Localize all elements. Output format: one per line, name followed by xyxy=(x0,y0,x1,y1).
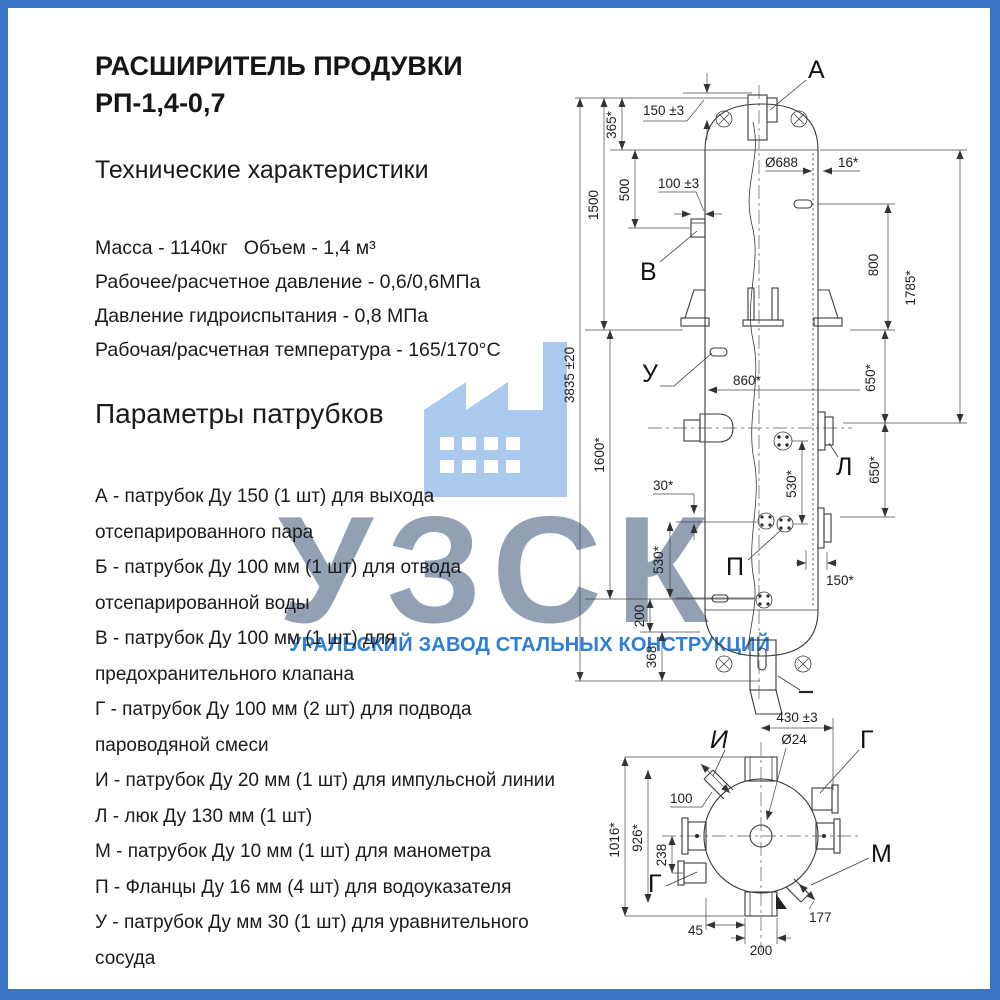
dim-365: 365* xyxy=(604,110,619,139)
dim-150-3: 150 ±3 xyxy=(643,103,684,118)
gauge-flange-p xyxy=(774,432,792,450)
dim-530b: 530* xyxy=(651,545,666,574)
dim-1600: 1600* xyxy=(592,437,607,473)
dim-650b: 650* xyxy=(867,455,882,484)
dim-1016: 1016* xyxy=(607,822,622,858)
label-u: У xyxy=(642,360,658,388)
dim-45: 45 xyxy=(688,923,703,938)
internal-support xyxy=(743,288,783,326)
label-a: А xyxy=(808,56,825,84)
dim-368: 368 xyxy=(644,646,659,669)
nozzle-a xyxy=(748,95,777,140)
spec-line: Масса - 1140кг Объем - 1,4 м³ xyxy=(95,231,575,265)
dim-530a: 530* xyxy=(784,469,799,498)
dim-1785: 1785* xyxy=(903,270,918,306)
label-g-bottom: Г xyxy=(648,870,662,898)
gauge-flange-p xyxy=(777,516,793,532)
label-l: Л xyxy=(836,453,852,481)
dim-1500: 1500 xyxy=(586,190,601,220)
title-line-2: РП-1,4-0,7 xyxy=(95,85,575,122)
nozzle-b-bottom xyxy=(750,640,813,714)
dim-100: 100 xyxy=(670,791,693,806)
list-item: Г - патрубок Ду 100 мм (2 шт) для подвод… xyxy=(95,692,575,763)
plan-nozzle-i xyxy=(704,770,733,799)
spec-line: Рабочее/расчетное давление - 0,6/0,6МПа xyxy=(95,265,575,299)
list-item: В - патрубок Ду 100 мм (1 шт) для предох… xyxy=(95,621,575,692)
label-g-top: Г xyxy=(860,726,874,754)
list-item: Л - люк Ду 130 мм (1 шт) xyxy=(95,799,575,835)
specs-list: Масса - 1140кг Объем - 1,4 м³ Рабочее/ра… xyxy=(95,231,575,367)
nozzle-small-left xyxy=(712,595,728,602)
spec-line: Давление гидроиспытания - 0,8 МПа xyxy=(95,299,575,333)
dim-430: 430 ±3 xyxy=(776,710,817,725)
dim-30: 30* xyxy=(653,478,674,493)
list-item: А - патрубок Ду 150 (1 шт) для выхода от… xyxy=(95,479,575,550)
dim-926: 926* xyxy=(630,823,645,852)
page: УЗСК УРАЛЬСКИЙ ЗАВОД СТАЛЬНЫХ КОНСТРУКЦИ… xyxy=(0,0,1000,1000)
list-item: И - патрубок Ду 20 мм (1 шт) для импульс… xyxy=(95,763,575,799)
dim-200: 200 xyxy=(632,605,647,628)
list-item: Б - патрубок Ду 100 мм (1 шт) для отвода… xyxy=(95,550,575,621)
dim-238: 238 xyxy=(654,844,669,867)
list-item: М - патрубок Ду 10 мм (1 шт) для маномет… xyxy=(95,834,575,870)
vessel-plan-view: 430 ±3 Ø24 100 1016* 926* 238 45 200 xyxy=(607,710,892,958)
dim-500: 500 xyxy=(617,179,632,202)
lifting-lug-right xyxy=(791,111,807,127)
label-m: М xyxy=(871,840,892,868)
gauge-flange-p xyxy=(756,592,772,608)
label-p: П xyxy=(726,553,744,581)
dim-177: 177 xyxy=(809,910,832,925)
plan-nozzle-g-right xyxy=(812,785,838,813)
bottom-lug-left xyxy=(716,656,732,672)
list-item: П - Фланцы Ду 16 мм (4 шт) для водоуказа… xyxy=(95,870,575,906)
dim-860: 860* xyxy=(733,373,762,388)
technical-drawing: 3835 ±20 1500 365* 500 1600* 200 368 150… xyxy=(555,40,1000,990)
dim-150r: 150* xyxy=(826,573,855,588)
dim-16: 16* xyxy=(838,155,859,170)
lifting-lug-left xyxy=(716,111,732,127)
label-v: В xyxy=(640,258,657,286)
dim-100-3: 100 ±3 xyxy=(658,176,699,191)
dim-24: Ø24 xyxy=(781,732,807,747)
nozzle-m-front xyxy=(794,200,812,208)
page-title: РАСШИРИТЕЛЬ ПРОДУВКИ РП-1,4-0,7 xyxy=(95,48,575,122)
nozzle-list: А - патрубок Ду 150 (1 шт) для выхода от… xyxy=(95,479,575,976)
manhole-l xyxy=(818,412,833,450)
plan-bottom-nozzle xyxy=(745,892,787,916)
dim-688: Ø688 xyxy=(765,155,798,170)
specs-heading: Технические характеристики xyxy=(95,156,575,185)
dim-650a: 650* xyxy=(863,363,878,392)
list-item: У - патрубок Ду мм 30 (1 шт) для уравнит… xyxy=(95,905,575,976)
spec-line: Рабочая/расчетная температура - 165/170°… xyxy=(95,333,575,367)
dim-b200: 200 xyxy=(750,943,773,958)
nozzle-u xyxy=(710,348,727,356)
gauge-flange-p xyxy=(758,513,774,529)
title-line-1: РАСШИРИТЕЛЬ ПРОДУВКИ xyxy=(95,48,575,85)
dim-3835: 3835 ±20 xyxy=(562,347,577,403)
vessel-front-view: 3835 ±20 1500 365* 500 1600* 200 368 150… xyxy=(562,56,967,714)
flange-right-lower xyxy=(818,508,831,548)
nozzles-heading: Параметры патрубков xyxy=(95,398,575,430)
bottom-lug-right xyxy=(795,656,811,672)
label-i: И xyxy=(710,726,728,754)
dim-800: 800 xyxy=(866,254,881,277)
